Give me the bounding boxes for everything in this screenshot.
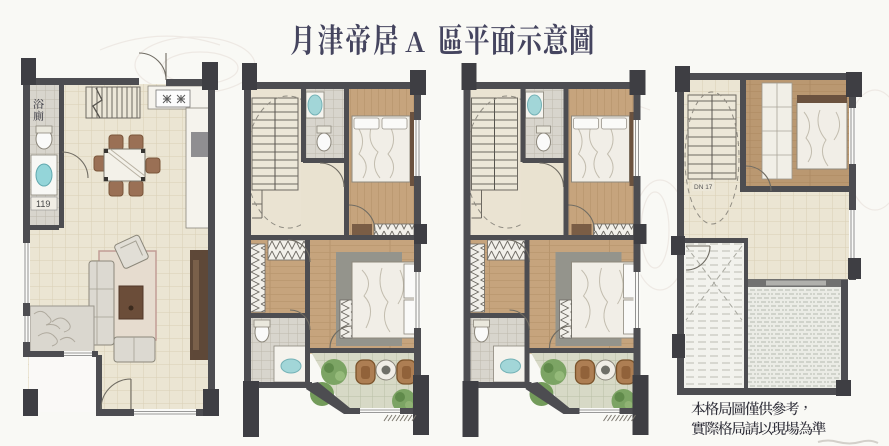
- svg-text:119: 119: [36, 199, 50, 209]
- svg-text:DN 17: DN 17: [694, 184, 713, 191]
